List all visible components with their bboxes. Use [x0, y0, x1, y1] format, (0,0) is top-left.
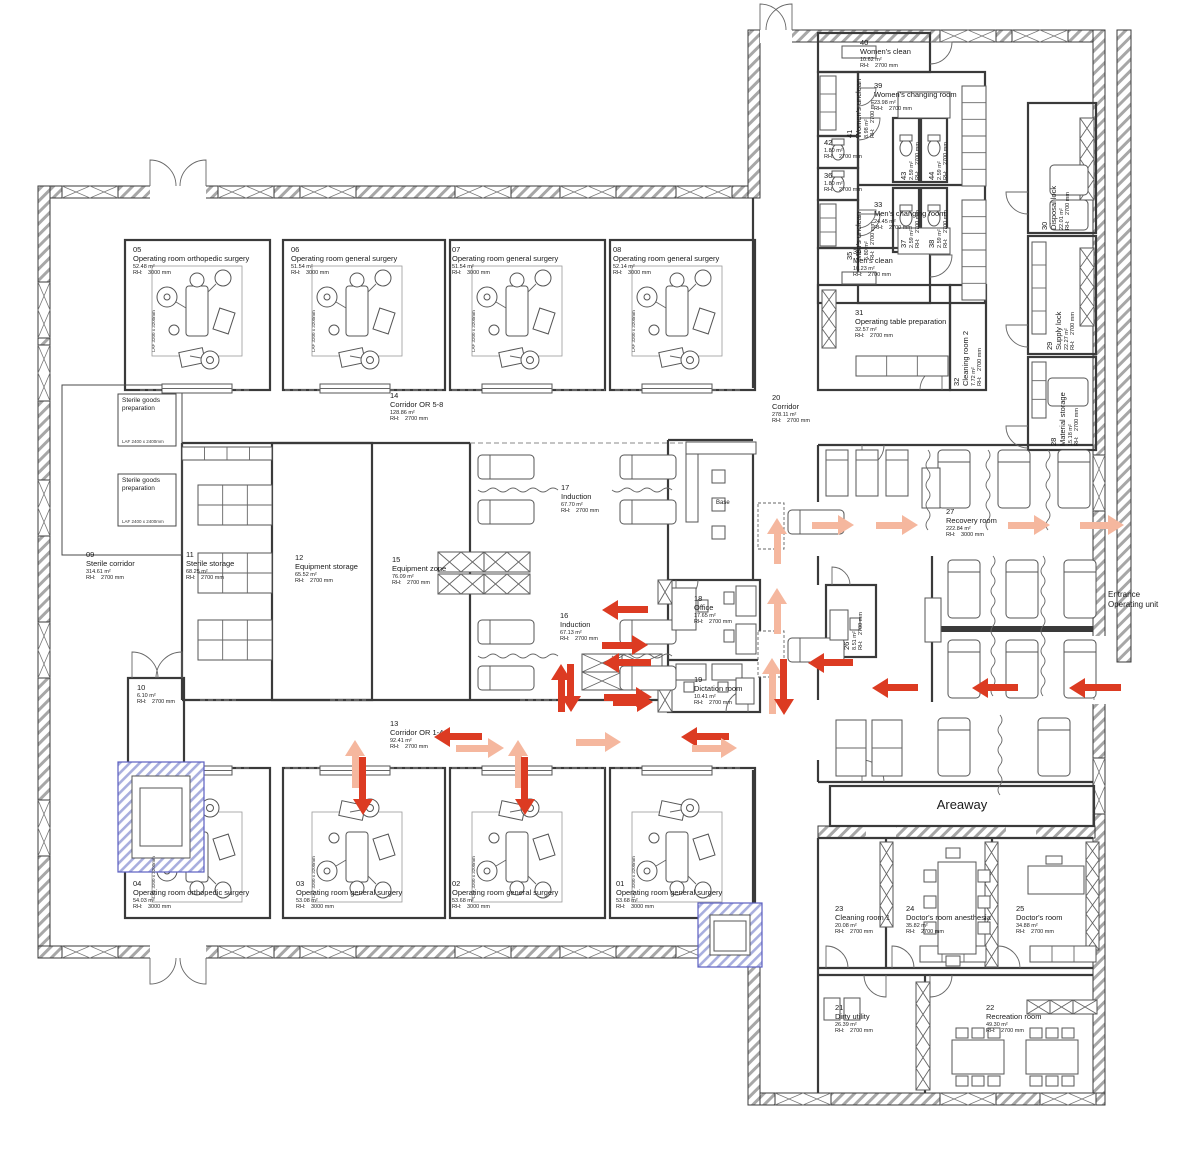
room-height: RH: 2700 mm — [853, 272, 893, 278]
window-icon — [1040, 1093, 1096, 1105]
room-label-23: 23Cleaning room 120.08 m²RH: 2700 mm — [835, 905, 890, 936]
room-name: Operating room orthopedic surgery — [133, 255, 249, 264]
base-desk-label: Base — [716, 500, 730, 506]
or-laf-tag: LAF 3200 x 3200mm — [631, 856, 636, 898]
window-icon — [455, 186, 511, 198]
operating-room-equipment-icon — [632, 266, 722, 369]
exterior-wall — [818, 826, 1095, 838]
room-name: Induction — [561, 493, 599, 502]
sterile-goods-prep-box: Sterile goods preparation LAF 2400 x 240… — [118, 394, 176, 446]
door-swing-icon — [180, 160, 206, 186]
sterile-goods-prep-title: Sterile goods preparation — [118, 394, 176, 413]
room-name: Corridor OR 5-8 — [390, 401, 443, 410]
room-label-19: 19Dictation room10.41 m²RH: 2700 mm — [694, 676, 742, 707]
areaway-label: Areaway — [830, 797, 1094, 812]
room-name: Sterile corridor — [86, 560, 135, 569]
room-label-05: 05Operating room orthopedic surgery52.48… — [133, 246, 249, 277]
bed-icon — [478, 500, 534, 524]
door-swing-icon — [930, 42, 952, 64]
room-number: 10 — [137, 684, 175, 693]
room-height: RH: 3000 mm — [291, 270, 397, 276]
or-laf-tag: LAF 3200 x 3200mm — [471, 310, 476, 352]
room-number: 37 — [900, 210, 909, 248]
room-height: RH: 2700 mm — [694, 700, 742, 706]
table-icon — [1026, 1040, 1078, 1074]
room-label-02: 02Operating room general surgery53.68 m²… — [452, 880, 558, 911]
equipment-crate-icon — [1080, 248, 1094, 326]
bed-icon — [1006, 560, 1038, 618]
room-height: RH: 2700 mm — [86, 575, 135, 581]
toilet-icon — [928, 135, 940, 141]
room-label-22: 22Recreation room49.30 m²RH: 2700 mm — [986, 1004, 1041, 1035]
bed-icon — [620, 500, 676, 524]
room-name: Office — [694, 604, 732, 613]
room-height: RH: 3000 mm — [133, 270, 249, 276]
room-label-43: 432.59 m²RH: 2700 mm — [900, 142, 922, 180]
room-name: Dirty utility — [835, 1013, 873, 1022]
room-label-30: 30Disposal lock22.01 m²RH: 2700 mm — [1041, 186, 1072, 230]
recovery-spine-wall — [930, 626, 1093, 632]
room-label-25: 25Doctor's room34.88 m²RH: 2700 mm — [1016, 905, 1062, 936]
door-swing-icon — [1006, 325, 1028, 347]
room-label-20: 20Corridor278.11 m²RH: 2700 mm — [772, 394, 810, 425]
furniture-icon — [736, 624, 756, 654]
room-label-10: 106.10 m²RH: 2700 mm — [137, 684, 175, 706]
room-label-42: 421.80 m²RH: 2700 mm — [824, 139, 862, 161]
door-swing-icon — [864, 975, 886, 997]
window-icon — [1012, 30, 1068, 42]
room-height: RH: 2700 mm — [874, 106, 957, 112]
room-name: Corridor — [772, 403, 810, 412]
lounge-chair-icon — [886, 450, 908, 496]
room-height: RH: 2700 mm — [943, 142, 949, 180]
furniture-icon — [946, 848, 960, 858]
exterior-wall — [748, 30, 760, 198]
room-label-37: 372.59 m²RH: 2700 mm — [900, 210, 922, 248]
room-name: Operating room general surgery — [452, 889, 558, 898]
room-height: RH: 2700 mm — [1065, 186, 1071, 230]
sterile-goods-prep-box: Sterile goods preparation LAF 2400 x 240… — [118, 474, 176, 526]
door-swing-icon — [150, 160, 176, 186]
equipment-crate-icon — [484, 552, 530, 572]
room-height: RH: 2700 mm — [835, 929, 890, 935]
window-icon — [455, 946, 511, 958]
door-swing-icon — [760, 4, 786, 30]
or-laf-tag: LAF 3200 x 3200mm — [311, 856, 316, 898]
door-swing-icon — [930, 975, 952, 997]
furniture-icon — [1046, 1076, 1058, 1086]
or-laf-tag: LAF 3200 x 3200mm — [471, 856, 476, 898]
room-label-24: 24Doctor's room anesthesia35.82 m²RH: 27… — [906, 905, 991, 936]
bed-icon — [938, 450, 970, 508]
room-name: Operating table preparation — [855, 318, 946, 327]
room-height: RH: 2700 mm — [835, 1028, 873, 1034]
window-icon — [38, 282, 50, 338]
curtain-icon — [478, 488, 558, 492]
room-height: RH: 2700 mm — [906, 929, 991, 935]
furniture-icon — [1046, 856, 1062, 864]
room-name: Induction — [560, 621, 598, 630]
operating-room-equipment-icon — [312, 266, 402, 369]
room-height: RH: 2700 mm — [977, 331, 983, 386]
room-label-12: 12Equipment storage65.52 m²RH: 2700 mm — [295, 554, 358, 585]
room-name: Recovery room — [946, 517, 997, 526]
equipment-crate-icon — [484, 574, 530, 594]
room-label-14: 14Corridor OR 5-8128.86 m²RH: 2700 mm — [390, 392, 443, 423]
bed-icon — [478, 455, 534, 479]
door-swing-icon — [156, 652, 182, 678]
room-height: RH: 3000 mm — [452, 270, 558, 276]
bed-icon — [1038, 718, 1070, 776]
room-height: RH: 2700 mm — [915, 210, 921, 248]
bed-icon — [620, 620, 676, 644]
floorplan-drawing — [0, 0, 1200, 1151]
room-height: RH: 2700 mm — [858, 612, 864, 650]
room-height: RH: 2700 mm — [870, 79, 876, 138]
room-label-06: 06Operating room general surgery51.54 m²… — [291, 246, 397, 277]
shelf-grid-icon — [820, 76, 836, 130]
room-label-28: 28Material storage15.18 m²RH: 2700 mm — [1050, 392, 1081, 446]
shelf-grid-icon — [856, 356, 948, 376]
room-number: 43 — [900, 142, 909, 180]
room-number: 26 — [843, 612, 852, 650]
room-height: RH: 2700 mm — [824, 154, 862, 160]
room-label-38: 382.59 m²RH: 2700 mm — [928, 210, 950, 248]
room-label-21: 21Dirty utility26.39 m²RH: 2700 mm — [835, 1004, 873, 1035]
bed-icon — [948, 560, 980, 618]
furniture-icon — [972, 1028, 984, 1038]
exterior-wall — [748, 950, 760, 1105]
room-height: RH: 2700 mm — [694, 619, 732, 625]
room-label-27: 27Recovery room222.84 m²RH: 3000 mm — [946, 508, 997, 539]
room-height: RH: 3000 mm — [296, 904, 402, 910]
furniture-icon — [712, 526, 725, 539]
door-swing-icon — [832, 567, 850, 585]
room-height: RH: 2700 mm — [943, 210, 949, 248]
bed-icon — [938, 718, 970, 776]
window-icon — [62, 186, 118, 198]
furniture-icon — [1030, 1076, 1042, 1086]
room-label-17: 17Induction67.70 m²RH: 2700 mm — [561, 484, 599, 515]
room-name: Cleaning room 2 — [962, 331, 971, 386]
window-icon — [560, 946, 616, 958]
door-opening — [150, 945, 206, 959]
bed-icon — [1058, 450, 1090, 508]
room-name: Doctor's room — [1016, 914, 1062, 923]
room-number: 36 — [824, 172, 862, 181]
furniture-icon — [924, 870, 936, 882]
furniture-icon — [946, 956, 960, 966]
exterior-wall — [38, 186, 760, 198]
room-number: 44 — [928, 142, 937, 180]
room-height: RH: 2700 mm — [392, 580, 446, 586]
table-icon — [1028, 866, 1084, 894]
window-icon — [300, 186, 356, 198]
room-height: RH: 2700 mm — [560, 636, 598, 642]
elevator-car — [714, 921, 746, 951]
sterile-goods-prep-laf: LAF 2400 x 2400mm — [118, 519, 176, 526]
operating-room-equipment-icon — [152, 266, 242, 369]
room-name: Equipment zone — [392, 565, 446, 574]
furniture-icon — [988, 1076, 1000, 1086]
room-label-09: 09Sterile corridor314.61 m²RH: 2700 mm — [86, 551, 135, 582]
door-swing-icon — [1006, 192, 1028, 214]
furniture-icon — [1062, 1076, 1074, 1086]
room-label-32: 32Cleaning room 27.72 m²RH: 2700 mm — [953, 331, 984, 386]
room-height: RH: 3000 mm — [616, 904, 722, 910]
bed-icon — [1064, 560, 1096, 618]
room-height: RH: 2700 mm — [561, 508, 599, 514]
furniture-icon — [922, 468, 940, 508]
floor-plan-canvas: Areaway Entrance Operating unit Base Ste… — [0, 0, 1200, 1151]
room-label-18: 18Office17.65 m²RH: 2700 mm — [694, 595, 732, 626]
room-name: Operating room general surgery — [613, 255, 719, 264]
furniture-icon — [978, 870, 990, 882]
door-swing-icon — [930, 255, 952, 277]
room-name: Doctor's room anesthesia — [906, 914, 991, 923]
room-height: RH: 2700 mm — [772, 418, 810, 424]
room-label-08: 08Operating room general surgery52.14 m²… — [613, 246, 719, 277]
window-icon — [38, 622, 50, 678]
entrance-label: Entrance Operating unit — [1108, 590, 1158, 610]
bed-icon — [998, 450, 1030, 508]
room-label-16: 16Induction67.13 m²RH: 2700 mm — [560, 612, 598, 643]
shelf-grid-icon — [1032, 362, 1046, 418]
furniture-icon — [925, 598, 941, 642]
window-icon — [218, 186, 274, 198]
room-height: RH: 3000 mm — [946, 532, 997, 538]
room-name: Material storage — [1059, 392, 1068, 446]
room-height: RH: 2700 mm — [1070, 312, 1076, 350]
room-number: 42 — [824, 139, 862, 148]
table-icon — [952, 1040, 1004, 1074]
or-laf-tag: LAF 3200 x 3200mm — [151, 856, 156, 898]
operating-room-equipment-icon — [472, 266, 562, 369]
room-label-40: 40Women's clean10.62 m²RH: 2700 mm — [860, 39, 911, 70]
room-name: Operating room general surgery — [291, 255, 397, 264]
window-icon — [300, 946, 356, 958]
room-height: RH: 2700 mm — [860, 63, 911, 69]
room-height: RH: 3000 mm — [613, 270, 719, 276]
door-swing-icon — [892, 946, 914, 968]
furniture-icon — [686, 442, 756, 454]
room-label-44: 442.59 m²RH: 2700 mm — [928, 142, 950, 180]
bed-icon — [620, 455, 676, 479]
room-label-36: 361.80 m²RH: 2700 mm — [824, 172, 862, 194]
room-name: Disposal lock — [1050, 186, 1059, 230]
furniture-icon — [684, 682, 694, 692]
window-icon — [676, 186, 732, 198]
exterior-wall — [1117, 30, 1131, 662]
door-opening — [150, 185, 206, 199]
room-label-39: 39Women's changing room23.98 m²RH: 2700 … — [874, 82, 957, 113]
room-height: RH: 2700 mm — [137, 699, 175, 705]
door-swing-icon — [180, 958, 206, 984]
or-laf-tag: LAF 3200 x 3200mm — [151, 310, 156, 352]
curtain-icon — [612, 488, 672, 492]
room-label-29: 29Supply lock22.27 m²RH: 2700 mm — [1046, 312, 1077, 350]
window-icon — [62, 946, 118, 958]
furniture-icon — [672, 588, 696, 630]
room-height: RH: 2700 mm — [390, 416, 443, 422]
furniture-icon — [1062, 1028, 1074, 1038]
elevator-car — [140, 788, 182, 846]
room-name: Operating room general surgery — [452, 255, 558, 264]
room-label-26: 268.51 m²RH: 2700 mm — [843, 612, 865, 650]
window-icon — [218, 946, 274, 958]
door-swing-icon — [826, 946, 848, 968]
furniture-icon — [1046, 1028, 1058, 1038]
lounge-chair-icon — [856, 450, 878, 496]
curtain-icon — [478, 654, 558, 658]
window-icon — [38, 480, 50, 536]
room-height: RH: 2700 mm — [186, 575, 234, 581]
room-label-41: 41Women's unclean8.98 m²RH: 2700 mm — [846, 79, 877, 138]
room-name: Cleaning room 1 — [835, 914, 890, 923]
room-name: Sterile storage — [186, 560, 234, 569]
room-height: RH: 2700 mm — [1016, 929, 1062, 935]
lounge-chair-icon — [826, 450, 848, 496]
room-name: Women's clean — [860, 48, 911, 57]
equipment-crate-icon — [1086, 842, 1099, 950]
window-icon — [940, 1093, 996, 1105]
room-name: Women's changing room — [874, 91, 957, 100]
room-height: RH: 2700 mm — [986, 1028, 1041, 1034]
room-name: Dictation room — [694, 685, 742, 694]
door-opening — [760, 29, 792, 43]
room-number: 38 — [928, 210, 937, 248]
room-label-35: 35Men's unclean5.80 m²RH: 2700 mm — [846, 212, 877, 260]
room-height: RH: 2700 mm — [1074, 392, 1080, 446]
exterior-wall — [38, 946, 760, 958]
room-name: Supply lock — [1055, 312, 1064, 350]
door-swing-icon — [132, 652, 158, 678]
room-label-11: 11Sterile storage68.25 m²RH: 2700 mm — [186, 551, 234, 582]
door-swing-icon — [998, 946, 1020, 968]
furniture-icon — [736, 586, 756, 616]
window-icon — [38, 345, 50, 401]
or-laf-tag: LAF 3200 x 3200mm — [631, 310, 636, 352]
window-icon — [1093, 455, 1105, 511]
furniture-icon — [712, 470, 725, 483]
sterile-goods-prep-laf: LAF 2400 x 2400mm — [118, 439, 176, 446]
window-icon — [940, 30, 996, 42]
furniture-icon — [956, 1076, 968, 1086]
door-swing-icon — [150, 958, 176, 984]
room-height: RH: 2700 mm — [915, 142, 921, 180]
room-label-31: 31Operating table preparation32.57 m²RH:… — [855, 309, 946, 340]
toilet-icon — [900, 135, 912, 141]
room-name: Men's unclean — [855, 212, 864, 260]
door-swing-icon — [766, 4, 792, 30]
room-name: Equipment storage — [295, 563, 358, 572]
room-height: RH: 2700 mm — [824, 187, 862, 193]
room-name: Recreation room — [986, 1013, 1041, 1022]
room-label-15: 15Equipment zone76.09 m²RH: 2700 mm — [392, 556, 446, 587]
window-icon — [775, 1093, 831, 1105]
room-name: Women's unclean — [855, 79, 864, 138]
or-laf-tag: LAF 3200 x 3200mm — [311, 310, 316, 352]
bed-icon — [478, 666, 534, 690]
window-icon — [560, 186, 616, 198]
room-height: RH: 2700 mm — [295, 578, 358, 584]
furniture-icon — [972, 1076, 984, 1086]
room-height: RH: 2700 mm — [855, 333, 946, 339]
shelf-grid-icon — [1030, 946, 1096, 962]
bed-icon — [478, 620, 534, 644]
furniture-icon — [956, 1028, 968, 1038]
room-height: RH: 3000 mm — [452, 904, 558, 910]
room-height: RH: 2700 mm — [870, 212, 876, 260]
shelf-grid-icon — [820, 204, 836, 246]
sterile-goods-prep-title: Sterile goods preparation — [118, 474, 176, 493]
furniture-icon — [724, 630, 734, 642]
room-label-07: 07Operating room general surgery51.54 m²… — [452, 246, 558, 277]
window-icon — [38, 800, 50, 856]
room-height: RH: 3000 mm — [133, 904, 249, 910]
